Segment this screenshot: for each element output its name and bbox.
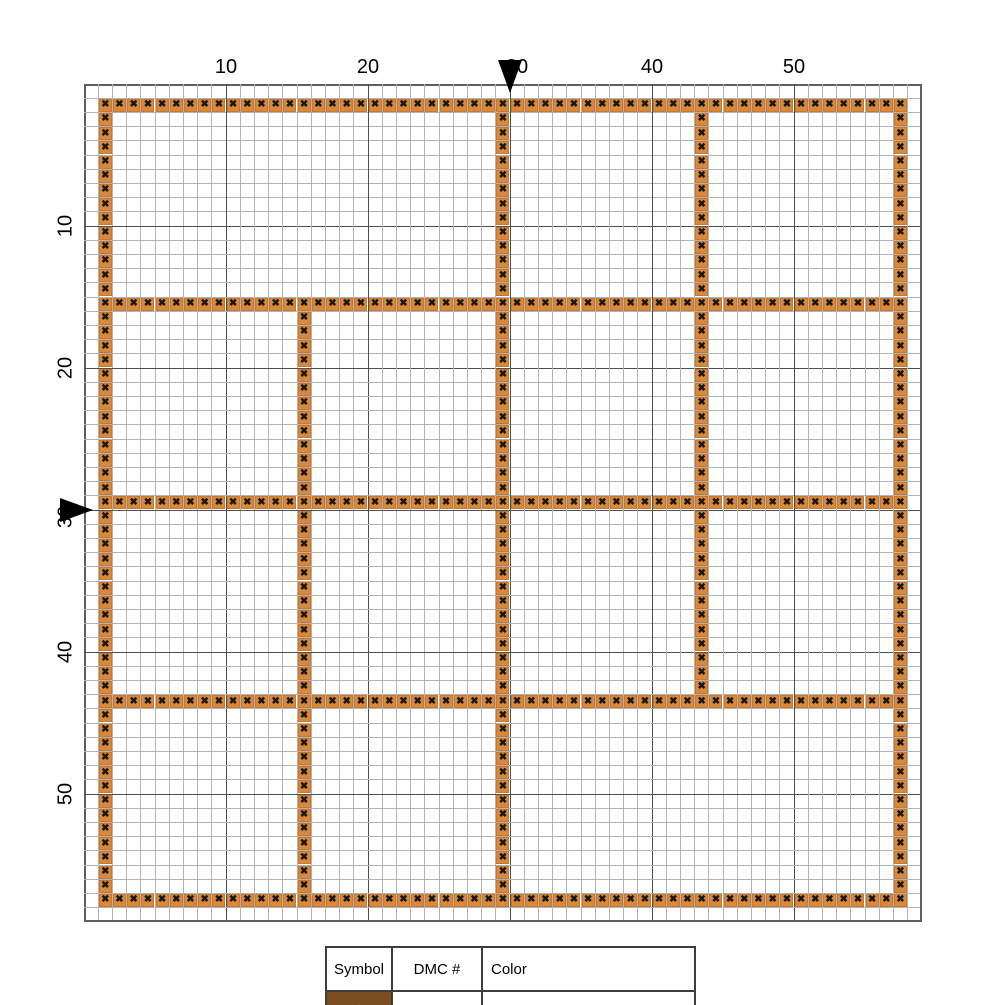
stitch-cell: ✖ <box>354 695 367 708</box>
stitch-cell: ✖ <box>525 496 538 509</box>
stitch-cell: ✖ <box>809 99 822 112</box>
top-axis-label-40: 40 <box>641 56 663 79</box>
stitch-cell: ✖ <box>425 496 438 509</box>
stitch-cell: ✖ <box>298 795 311 808</box>
stitch-cell: ✖ <box>369 99 382 112</box>
stitch-cell: ✖ <box>255 99 268 112</box>
stitch-cell: ✖ <box>99 241 112 254</box>
stitch-cell: ✖ <box>695 170 708 183</box>
stitch-cell: ✖ <box>695 326 708 339</box>
stitch-cell: ✖ <box>141 695 154 708</box>
stitch-cell: ✖ <box>525 695 538 708</box>
stitch-cell: ✖ <box>298 653 311 666</box>
stitch-cell: ✖ <box>255 298 268 311</box>
stitch-cell: ✖ <box>894 425 907 438</box>
stitch-cell: ✖ <box>99 227 112 240</box>
stitch-cell: ✖ <box>709 894 722 907</box>
stitch-cell: ✖ <box>894 525 907 538</box>
stitch-cell: ✖ <box>298 369 311 382</box>
stitch-cell: ✖ <box>283 298 296 311</box>
stitch-cell: ✖ <box>695 227 708 240</box>
stitch-cell: ✖ <box>298 866 311 879</box>
stitch-cell: ✖ <box>795 894 808 907</box>
stitch-cell: ✖ <box>99 425 112 438</box>
legend-header-dmc: DMC # <box>392 947 482 991</box>
stitch-cell: ✖ <box>596 496 609 509</box>
stitch-cell: ✖ <box>511 496 524 509</box>
stitch-cell: ✖ <box>298 823 311 836</box>
stitch-cell: ✖ <box>354 894 367 907</box>
top-axis-label-20: 20 <box>357 56 379 79</box>
legend-swatch: ★ <box>326 991 392 1005</box>
stitch-cell: ✖ <box>866 496 879 509</box>
stitch-cell: ✖ <box>496 596 509 609</box>
stitch-cell: ✖ <box>298 525 311 538</box>
stitch-cell: ✖ <box>624 298 637 311</box>
stitch-cell: ✖ <box>496 227 509 240</box>
stitch-cell: ✖ <box>894 724 907 737</box>
stitch-cell: ✖ <box>99 610 112 623</box>
stitch-cell: ✖ <box>596 894 609 907</box>
stitch-cell: ✖ <box>894 156 907 169</box>
stitch-cell: ✖ <box>738 695 751 708</box>
stitch-cell: ✖ <box>695 454 708 467</box>
stitch-cell: ✖ <box>198 695 211 708</box>
stitch-cell: ✖ <box>525 298 538 311</box>
stitch-cell: ✖ <box>894 610 907 623</box>
stitch-cell: ✖ <box>298 468 311 481</box>
stitch-cell: ✖ <box>198 894 211 907</box>
stitch-cell: ✖ <box>695 468 708 481</box>
stitch-cell: ✖ <box>567 894 580 907</box>
stitch-cell: ✖ <box>567 695 580 708</box>
stitch-cell: ✖ <box>369 894 382 907</box>
stitch-cell: ✖ <box>482 298 495 311</box>
stitch-cell: ✖ <box>525 99 538 112</box>
stitch-cell: ✖ <box>695 369 708 382</box>
stitch-cell: ✖ <box>99 198 112 211</box>
stitch-cell: ✖ <box>298 624 311 637</box>
stitch-cell: ✖ <box>212 894 225 907</box>
stitch-cell: ✖ <box>695 340 708 353</box>
stitch-cell: ✖ <box>369 298 382 311</box>
stitch-cell: ✖ <box>681 99 694 112</box>
legend-header-symbol: Symbol <box>326 947 392 991</box>
stitch-cell: ✖ <box>99 880 112 893</box>
stitch-cell: ✖ <box>468 99 481 112</box>
grid-line-horizontal <box>84 920 922 922</box>
stitch-cell: ✖ <box>894 99 907 112</box>
stitch-cell: ✖ <box>496 837 509 850</box>
stitch-cell: ✖ <box>695 553 708 566</box>
stitch-cell: ✖ <box>539 99 552 112</box>
stitch-cell: ✖ <box>99 553 112 566</box>
stitch-cell: ✖ <box>894 411 907 424</box>
stitch-cell: ✖ <box>482 496 495 509</box>
stitch-cell: ✖ <box>340 298 353 311</box>
stitch-cell: ✖ <box>596 99 609 112</box>
stitch-cell: ✖ <box>468 496 481 509</box>
stitch-cell: ✖ <box>99 752 112 765</box>
stitch-cell: ✖ <box>255 894 268 907</box>
stitch-cell: ✖ <box>894 198 907 211</box>
stitch-cell: ✖ <box>113 298 126 311</box>
stitch-cell: ✖ <box>496 681 509 694</box>
stitch-cell: ✖ <box>383 894 396 907</box>
stitch-cell: ✖ <box>610 298 623 311</box>
stitch-cell: ✖ <box>141 99 154 112</box>
stitch-cell: ✖ <box>383 496 396 509</box>
stitch-cell: ✖ <box>894 582 907 595</box>
stitch-cell: ✖ <box>496 397 509 410</box>
stitch-cell: ✖ <box>894 752 907 765</box>
stitch-cell: ✖ <box>99 440 112 453</box>
stitch-cell: ✖ <box>667 695 680 708</box>
stitch-cell: ✖ <box>99 411 112 424</box>
stitch-cell: ✖ <box>894 880 907 893</box>
stitch-cell: ✖ <box>567 99 580 112</box>
stitch-cell: ✖ <box>298 99 311 112</box>
stitch-cell: ✖ <box>724 298 737 311</box>
stitch-cell: ✖ <box>496 241 509 254</box>
stitch-cell: ✖ <box>866 894 879 907</box>
stitch-cell: ✖ <box>298 440 311 453</box>
stitch-cell: ✖ <box>298 638 311 651</box>
stitch-cell: ✖ <box>695 567 708 580</box>
stitch-cell: ✖ <box>695 354 708 367</box>
stitch-cell: ✖ <box>468 298 481 311</box>
stitch-cell: ✖ <box>780 695 793 708</box>
stitch-cell: ✖ <box>695 425 708 438</box>
stitch-cell: ✖ <box>738 894 751 907</box>
stitch-cell: ✖ <box>695 482 708 495</box>
stitch-cell: ✖ <box>511 99 524 112</box>
stitch-cell: ✖ <box>156 894 169 907</box>
stitch-cell: ✖ <box>681 496 694 509</box>
stitch-cell: ✖ <box>894 795 907 808</box>
stitch-cell: ✖ <box>298 354 311 367</box>
stitch-cell: ✖ <box>695 681 708 694</box>
stitch-cell: ✖ <box>610 496 623 509</box>
stitch-cell: ✖ <box>894 383 907 396</box>
stitch-cell: ✖ <box>198 99 211 112</box>
stitch-cell: ✖ <box>298 596 311 609</box>
stitch-cell: ✖ <box>184 99 197 112</box>
stitch-cell: ✖ <box>326 496 339 509</box>
stitch-cell: ✖ <box>496 624 509 637</box>
stitch-cell: ✖ <box>496 340 509 353</box>
stitch-cell: ✖ <box>99 298 112 311</box>
stitch-cell: ✖ <box>99 354 112 367</box>
stitch-cell: ✖ <box>795 99 808 112</box>
left-axis-label-10: 10 <box>55 215 78 237</box>
stitch-cell: ✖ <box>894 283 907 296</box>
stitch-cell: ✖ <box>496 170 509 183</box>
center-marker-right-icon <box>60 498 93 522</box>
stitch-cell: ✖ <box>496 482 509 495</box>
stitch-cell: ✖ <box>880 695 893 708</box>
stitch-cell: ✖ <box>99 738 112 751</box>
stitch-cell: ✖ <box>99 780 112 793</box>
stitch-cell: ✖ <box>369 496 382 509</box>
stitch-cell: ✖ <box>894 695 907 708</box>
stitch-cell: ✖ <box>340 695 353 708</box>
stitch-cell: ✖ <box>695 198 708 211</box>
stitch-cell: ✖ <box>851 99 864 112</box>
stitch-cell: ✖ <box>695 653 708 666</box>
stitch-cell: ✖ <box>141 496 154 509</box>
stitch-cell: ✖ <box>440 99 453 112</box>
stitch-cell: ✖ <box>695 894 708 907</box>
stitch-cell: ✖ <box>582 496 595 509</box>
stitch-cell: ✖ <box>894 709 907 722</box>
stitch-cell: ✖ <box>752 298 765 311</box>
stitch-cell: ✖ <box>440 496 453 509</box>
stitch-cell: ✖ <box>496 709 509 722</box>
stitch-cell: ✖ <box>227 496 240 509</box>
stitch-cell: ✖ <box>496 795 509 808</box>
stitch-cell: ✖ <box>496 198 509 211</box>
stitch-cell: ✖ <box>113 894 126 907</box>
stitch-cell: ✖ <box>894 511 907 524</box>
stitch-cell: ✖ <box>411 99 424 112</box>
stitch-cell: ✖ <box>298 425 311 438</box>
stitch-cell: ✖ <box>653 496 666 509</box>
stitch-cell: ✖ <box>780 496 793 509</box>
stitch-cell: ✖ <box>454 894 467 907</box>
stitch-cell: ✖ <box>496 184 509 197</box>
stitch-cell: ✖ <box>99 624 112 637</box>
stitch-cell: ✖ <box>695 184 708 197</box>
center-marker-down-icon <box>498 60 522 93</box>
stitch-cell: ✖ <box>553 695 566 708</box>
stitch-cell: ✖ <box>894 866 907 879</box>
stitch-cell: ✖ <box>496 440 509 453</box>
stitch-cell: ✖ <box>170 695 183 708</box>
stitch-cell: ✖ <box>780 298 793 311</box>
stitch-cell: ✖ <box>425 695 438 708</box>
stitch-cell: ✖ <box>227 99 240 112</box>
stitch-cell: ✖ <box>241 894 254 907</box>
stitch-cell: ✖ <box>582 99 595 112</box>
stitch-cell: ✖ <box>269 99 282 112</box>
stitch-cell: ✖ <box>681 298 694 311</box>
stitch-cell: ✖ <box>894 482 907 495</box>
stitch-cell: ✖ <box>454 496 467 509</box>
stitch-cell: ✖ <box>99 369 112 382</box>
stitch-cell: ✖ <box>894 227 907 240</box>
stitch-cell: ✖ <box>894 653 907 666</box>
stitch-cell: ✖ <box>511 298 524 311</box>
stitch-cell: ✖ <box>496 511 509 524</box>
stitch-cell: ✖ <box>496 383 509 396</box>
stitch-cell: ✖ <box>99 795 112 808</box>
stitch-cell: ✖ <box>766 695 779 708</box>
stitch-cell: ✖ <box>298 695 311 708</box>
stitch-cell: ✖ <box>99 511 112 524</box>
stitch-cell: ✖ <box>411 894 424 907</box>
stitch-cell: ✖ <box>99 397 112 410</box>
stitch-cell: ✖ <box>695 283 708 296</box>
stitch-cell: ✖ <box>411 496 424 509</box>
stitch-cell: ✖ <box>766 99 779 112</box>
stitch-cell: ✖ <box>894 894 907 907</box>
stitch-cell: ✖ <box>383 695 396 708</box>
stitch-cell: ✖ <box>99 823 112 836</box>
stitch-cell: ✖ <box>894 127 907 140</box>
stitch-cell: ✖ <box>397 298 410 311</box>
stitch-cell: ✖ <box>553 298 566 311</box>
stitch-cell: ✖ <box>241 99 254 112</box>
stitch-cell: ✖ <box>496 127 509 140</box>
stitch-cell: ✖ <box>795 298 808 311</box>
stitch-cell: ✖ <box>113 695 126 708</box>
stitch-cell: ✖ <box>298 397 311 410</box>
stitch-cell: ✖ <box>752 99 765 112</box>
stitch-cell: ✖ <box>496 553 509 566</box>
stitch-cell: ✖ <box>638 298 651 311</box>
stitch-cell: ✖ <box>894 454 907 467</box>
stitch-cell: ✖ <box>596 695 609 708</box>
stitch-cell: ✖ <box>298 383 311 396</box>
stitch-cell: ✖ <box>127 695 140 708</box>
stitch-cell: ✖ <box>724 894 737 907</box>
stitch-cell: ✖ <box>397 695 410 708</box>
stitch-cell: ✖ <box>468 695 481 708</box>
stitch-cell: ✖ <box>695 383 708 396</box>
stitch-cell: ✖ <box>695 624 708 637</box>
stitch-cell: ✖ <box>383 298 396 311</box>
stitch-cell: ✖ <box>894 667 907 680</box>
stitch-cell: ✖ <box>837 496 850 509</box>
stitch-cell: ✖ <box>496 823 509 836</box>
stitch-cell: ✖ <box>99 525 112 538</box>
stitch-cell: ✖ <box>894 440 907 453</box>
stitch-cell: ✖ <box>156 695 169 708</box>
stitch-cell: ✖ <box>894 468 907 481</box>
stitch-cell: ✖ <box>766 496 779 509</box>
stitch-cell: ✖ <box>695 298 708 311</box>
stitch-cell: ✖ <box>99 340 112 353</box>
stitch-cell: ✖ <box>837 695 850 708</box>
stitch-cell: ✖ <box>241 298 254 311</box>
stitch-cell: ✖ <box>99 269 112 282</box>
stitch-cell: ✖ <box>99 283 112 296</box>
stitch-cell: ✖ <box>894 553 907 566</box>
stitch-cell: ✖ <box>837 894 850 907</box>
stitch-cell: ✖ <box>269 298 282 311</box>
stitch-cell: ✖ <box>184 496 197 509</box>
legend-header-row: Symbol DMC # Color <box>326 947 695 991</box>
stitch-cell: ✖ <box>298 667 311 680</box>
stitch-cell: ✖ <box>283 99 296 112</box>
stitch-cell: ✖ <box>894 851 907 864</box>
stitch-cell: ✖ <box>425 298 438 311</box>
stitch-cell: ✖ <box>809 496 822 509</box>
stitch-cell: ✖ <box>298 539 311 552</box>
stitch-cell: ✖ <box>724 99 737 112</box>
stitch-cell: ✖ <box>653 298 666 311</box>
stitch-cell: ✖ <box>880 99 893 112</box>
stitch-cell: ✖ <box>695 411 708 424</box>
legend-star-icon: ★ <box>347 992 370 1005</box>
stitch-cell: ✖ <box>411 695 424 708</box>
stitch-cell: ✖ <box>496 269 509 282</box>
stitch-cell: ✖ <box>170 298 183 311</box>
stitch-cell: ✖ <box>99 312 112 325</box>
stitch-cell: ✖ <box>496 99 509 112</box>
pattern-grid: ✖✖✖✖✖✖✖✖✖✖✖✖✖✖✖✖✖✖✖✖✖✖✖✖✖✖✖✖✖✖✖✖✖✖✖✖✖✖✖✖… <box>84 84 922 922</box>
stitch-cell: ✖ <box>667 496 680 509</box>
stitch-cell: ✖ <box>624 496 637 509</box>
stitch-cell: ✖ <box>198 496 211 509</box>
stitch-cell: ✖ <box>312 99 325 112</box>
stitch-cell: ✖ <box>141 894 154 907</box>
stitch-cell: ✖ <box>99 851 112 864</box>
stitch-cell: ✖ <box>894 780 907 793</box>
stitch-cell: ✖ <box>780 99 793 112</box>
stitch-cell: ✖ <box>212 99 225 112</box>
stitch-cell: ✖ <box>212 695 225 708</box>
stitch-cell: ✖ <box>283 496 296 509</box>
stitch-cell: ✖ <box>695 582 708 595</box>
stitch-cell: ✖ <box>255 496 268 509</box>
stitch-cell: ✖ <box>695 596 708 609</box>
stitch-cell: ✖ <box>539 298 552 311</box>
stitch-cell: ✖ <box>298 454 311 467</box>
stitch-cell: ✖ <box>227 894 240 907</box>
stitch-cell: ✖ <box>496 766 509 779</box>
stitch-cell: ✖ <box>610 695 623 708</box>
legend-table: Symbol DMC # Color ★ 433 Brown, med <box>325 946 696 1005</box>
stitch-cell: ✖ <box>709 496 722 509</box>
stitch-cell: ✖ <box>894 567 907 580</box>
stitch-cell: ✖ <box>440 894 453 907</box>
stitch-cell: ✖ <box>894 212 907 225</box>
stitch-cell: ✖ <box>866 695 879 708</box>
stitch-cell: ✖ <box>170 894 183 907</box>
stitch-cell: ✖ <box>496 326 509 339</box>
stitch-cell: ✖ <box>99 695 112 708</box>
stitch-cell: ✖ <box>695 397 708 410</box>
stitch-cell: ✖ <box>695 638 708 651</box>
stitch-cell: ✖ <box>99 326 112 339</box>
stitch-cell: ✖ <box>894 496 907 509</box>
stitch-cell: ✖ <box>894 298 907 311</box>
stitch-cell: ✖ <box>298 511 311 524</box>
stitch-cell: ✖ <box>837 99 850 112</box>
stitch-cell: ✖ <box>312 496 325 509</box>
stitch-cell: ✖ <box>170 99 183 112</box>
stitch-cell: ✖ <box>695 525 708 538</box>
stitch-cell: ✖ <box>795 695 808 708</box>
stitch-cell: ✖ <box>496 369 509 382</box>
stitch-cell: ✖ <box>326 894 339 907</box>
stitch-cell: ✖ <box>127 99 140 112</box>
stitch-cell: ✖ <box>695 695 708 708</box>
stitch-cell: ✖ <box>780 894 793 907</box>
stitch-cell: ✖ <box>823 496 836 509</box>
stitch-cell: ✖ <box>298 681 311 694</box>
stitch-cell: ✖ <box>624 894 637 907</box>
stitch-cell: ✖ <box>695 269 708 282</box>
stitch-cell: ✖ <box>496 468 509 481</box>
stitch-cell: ✖ <box>695 440 708 453</box>
left-axis-label-40: 40 <box>55 641 78 663</box>
stitch-cell: ✖ <box>354 99 367 112</box>
stitch-cell: ✖ <box>496 425 509 438</box>
stitch-cell: ✖ <box>99 184 112 197</box>
